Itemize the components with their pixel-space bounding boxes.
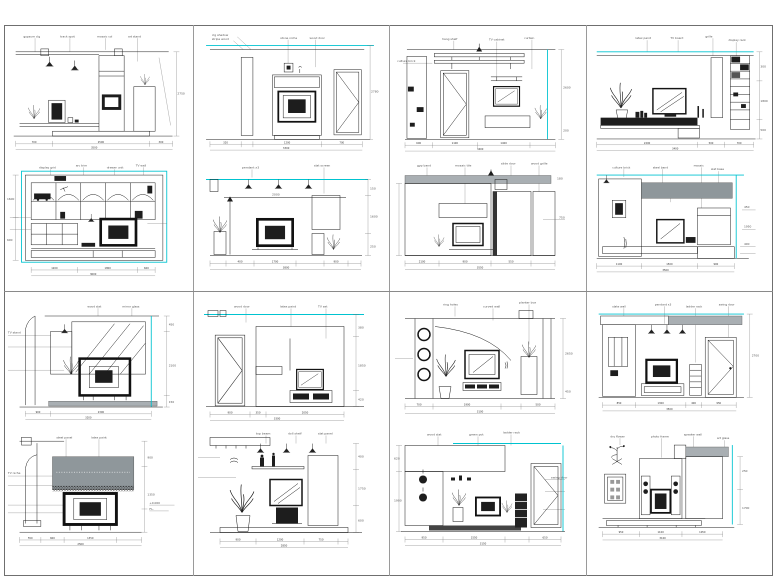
tv-icon (494, 87, 520, 107)
beam-block (519, 311, 533, 319)
anno-label: display grid (39, 165, 56, 169)
soundbar (82, 243, 96, 247)
anno-label: curtain (524, 36, 534, 40)
pendant-lamp-icon (305, 180, 312, 189)
elevation-4b: culture brick steel band mosaic slat bas… (589, 158, 773, 288)
dim-total: 3300 (274, 417, 281, 421)
anno-label: wood door (234, 305, 251, 309)
pendant-lamp-icon (309, 444, 316, 453)
column-base (23, 521, 40, 527)
dim-total: 3100 (477, 410, 484, 414)
dim-total: 3100 (659, 536, 666, 540)
steel-band (641, 183, 732, 198)
dim: 2100 (419, 260, 426, 264)
anno-label: swing door (719, 302, 736, 306)
anno-label: latex paint (91, 435, 107, 439)
plant-icon (230, 485, 254, 513)
display-grid (31, 183, 155, 220)
dim: 700 (737, 141, 742, 145)
dim-height: 400 (744, 242, 750, 246)
leader (159, 58, 171, 126)
anno-label: mirror glass (122, 304, 140, 308)
tv-unit (635, 89, 703, 118)
anno-label: 750 (559, 216, 565, 220)
tv-unit (290, 369, 332, 402)
dim: 1100 (616, 262, 623, 266)
pendant-lamp-icon (679, 325, 686, 334)
arrow-pole (227, 197, 233, 255)
plant-icon (213, 217, 227, 233)
anno-label: ladder rack (686, 304, 703, 308)
dim-height: 400 (358, 455, 364, 459)
dim-height: 1900 (394, 499, 402, 503)
pendant-lamp-icon (663, 325, 670, 334)
anno-label: latex paint (280, 305, 297, 309)
plant-icon (535, 105, 547, 119)
dim: 550 (28, 536, 33, 540)
dim-total: 3150 (480, 542, 487, 546)
dim: 900 (463, 260, 468, 264)
level-note: +0.000 F.L. (149, 501, 174, 511)
tv-unit (657, 220, 696, 243)
dim: 1400 (500, 141, 507, 145)
anno-label: display rack (728, 38, 746, 42)
annotations: latex paint TV board grille display rack (635, 34, 746, 55)
dim: 600 (50, 536, 55, 540)
annotations: pendant x3 2000 slat screen (242, 164, 330, 197)
anno-label: swing door (551, 476, 568, 480)
pendant-lamp-icon (257, 444, 264, 453)
dim-height: 600 (7, 238, 13, 242)
grid-divider-v2 (389, 25, 390, 576)
tv-low-cabinet (601, 118, 698, 126)
dim-height: 1750 (358, 487, 366, 491)
dim-height: 1600 (7, 197, 15, 201)
dim: 1500 (666, 262, 673, 266)
annotations: clg shadow stripe wood stone niche wood … (212, 33, 326, 67)
photo-frame (604, 474, 625, 503)
anno-label: photo frame (651, 434, 669, 438)
dim: 1350 (87, 536, 94, 540)
anno-label: arc trim (76, 163, 88, 167)
dim: 700 (339, 140, 344, 144)
anno-label: wood door (310, 36, 326, 40)
doll-shelf (252, 453, 304, 469)
door-icon (215, 335, 245, 406)
dim-total: 3800 (283, 266, 290, 270)
door (705, 337, 736, 397)
anno-label: TV cabinet (488, 38, 505, 42)
dim-height: 150 (370, 187, 376, 191)
anno-label: hang shelf (442, 37, 458, 41)
ring-column (415, 319, 433, 399)
mosaic-band (697, 208, 730, 216)
speaker-wall (639, 459, 682, 519)
anno-label: wood slat (87, 304, 102, 308)
dim: 600 (144, 266, 149, 270)
dim: 1100 (657, 530, 664, 534)
dim-height: 500 (760, 128, 766, 132)
elevation-5a: wood slat mirror glass TV stand 900 2300… (6, 297, 190, 427)
dim: 1800 (104, 266, 111, 270)
hanger (488, 171, 494, 176)
dim: 1200 (51, 266, 58, 270)
dim-height: 1800 (760, 99, 768, 103)
dim: 2050 (302, 411, 309, 415)
dim-height: 2100 (169, 363, 177, 367)
anno-label: gypsum clg (23, 34, 40, 38)
dimensions: 1100 1500 900 3500 450 1950 400 (597, 205, 756, 272)
beam-block (210, 180, 218, 192)
steel-panel (52, 457, 133, 492)
annotations: wood slat mirror glass TV stand (7, 304, 140, 370)
elevation-6a: wood door latex paint TV set 900 350 205… (196, 297, 386, 427)
annotations: top beam doll shelf slat panel (198, 432, 333, 478)
dim-height: 420 (358, 398, 364, 402)
dim-height: 250 (742, 469, 748, 473)
stripe-column (241, 57, 253, 135)
tv-stand (80, 359, 130, 401)
beam-box (208, 311, 218, 317)
dim: 1300 (657, 401, 664, 405)
anno-label: slat screen (314, 164, 330, 168)
dim-height: 900 (147, 456, 153, 460)
dim: 750 (319, 538, 324, 542)
anno-label: curved wall (483, 305, 500, 309)
side-column (25, 443, 37, 523)
plant-icon (140, 74, 149, 85)
elevation-1b: display grid arc trim drawer unit TV wal… (6, 158, 190, 288)
base-strip (603, 247, 698, 254)
anno-label: ladder rack (503, 431, 520, 435)
elevation-2a: clg shadow stripe wood stone niche wood … (196, 30, 386, 154)
dimensions: 900 350 2050 3300 380 1850 420 (210, 315, 366, 421)
anno-label: drawer unit (107, 165, 125, 169)
top-beam (210, 438, 270, 449)
feature-column (99, 56, 124, 132)
dim: 600 (416, 141, 421, 145)
elevation-3a: hang shelf culture brick TV cabinet curt… (393, 30, 583, 154)
dim: 1100 (452, 141, 459, 145)
dim: 900 (36, 410, 41, 414)
slat-screen (312, 196, 340, 230)
dim-height: 2600 (563, 86, 571, 90)
anno-label: grille (705, 34, 712, 38)
dim: 1200 (277, 538, 284, 542)
dim-height: 200 (563, 129, 569, 133)
anno-label: TV niche (7, 471, 21, 475)
dim: 320 (223, 140, 228, 144)
door (531, 464, 561, 528)
pendant-lamp-icon (245, 180, 252, 189)
dim-total: 2500 (77, 542, 84, 546)
side-column (25, 316, 35, 405)
dimensions: 900 1200 750 2850 400 1750 600 (220, 444, 366, 548)
grille-panel (533, 192, 555, 256)
drawer-unit (31, 223, 77, 244)
annotations: wood door latex paint TV set (234, 305, 328, 339)
pendant-lamp-icon (648, 325, 655, 334)
stone-wall (603, 325, 636, 397)
wall-outline (405, 184, 491, 256)
base-strip (49, 401, 157, 406)
dim-total: 3500 (662, 268, 669, 272)
dim: 950 (619, 530, 624, 534)
annotations: display grid arc trim drawer unit TV wal… (39, 163, 146, 175)
plant-icon (28, 105, 40, 119)
slat-panel (51, 331, 72, 374)
dim: 1550 (471, 536, 478, 540)
ladder-rack (690, 364, 702, 395)
grid-divider-h1 (4, 291, 773, 292)
anno-label: TV board (669, 36, 683, 40)
plant-icon (502, 501, 512, 513)
dim-height: 250 (370, 245, 376, 249)
left-plant (213, 217, 227, 255)
dim-height: 450 (565, 390, 571, 394)
sliding-door (493, 180, 531, 256)
dim: 500 (536, 403, 541, 407)
anno-label: pendant x3 (242, 166, 259, 170)
dim: 950 (422, 536, 427, 540)
plant-icon (610, 83, 631, 108)
center-display (451, 476, 512, 522)
tv-icon (297, 369, 324, 389)
dim: 1700 (272, 260, 279, 264)
anno-label: stone niche (280, 36, 297, 40)
hatch-band (256, 367, 282, 375)
anno-label: TV stand (7, 330, 21, 334)
plant-icon (434, 235, 444, 247)
dim-total: 3500 (91, 146, 98, 150)
beam-box (220, 311, 226, 317)
dim: 700 (417, 403, 422, 407)
anno-label: slat panel (318, 432, 333, 436)
anno-label: track spot (60, 34, 75, 38)
dimensions: 600 1100 1400 3400 2600 200 (405, 50, 571, 152)
tv-unit (252, 219, 298, 249)
plant-icon (452, 490, 466, 506)
anno-label: dry flower (610, 434, 625, 438)
dim-height: 300 (760, 64, 766, 68)
pendant-lamp-icon (88, 214, 94, 222)
dim: 900 (236, 538, 241, 542)
elevation-6b: top beam doll shelf slat panel 900 1200 … (196, 428, 386, 558)
ladder-rack (515, 494, 527, 528)
grid-divider-v1 (193, 25, 194, 576)
anno-label: TV wall (135, 163, 147, 167)
plant-icon (327, 235, 340, 250)
dim-height: 620 (394, 457, 400, 461)
pendant-lamp-icon (46, 57, 54, 66)
dim: 900 (334, 260, 339, 264)
anno-label: slate wall (612, 304, 626, 308)
anno-label: green pot (469, 433, 484, 437)
ceiling-beam (16, 49, 169, 56)
plinth (31, 249, 155, 258)
anno-label: doll shelf (288, 432, 303, 436)
dim-height: 1600 (370, 215, 378, 219)
anno-label: art stand (128, 34, 141, 38)
annotations: slate wall pendant x3 ladder rack swing … (612, 302, 735, 362)
dim-height: 600 (358, 519, 364, 523)
anno-label: pendant x3 (655, 302, 672, 306)
display-rack (730, 56, 749, 130)
anno-label: art glass (717, 436, 730, 440)
elevation-5b: steel panel latex paint TV niche +0.000 … (6, 428, 190, 558)
anno-label: steel band (653, 165, 668, 169)
brick-wall (599, 175, 642, 256)
dim: 950 (716, 401, 721, 405)
dim-height: 2650 (565, 352, 573, 356)
dim-height: 1850 (358, 364, 366, 368)
anno-label: slat base (711, 167, 724, 171)
dry-flower (609, 445, 624, 464)
dim-total: 3550 (477, 266, 484, 270)
tv-icon (101, 219, 136, 245)
dim: 2500 (98, 140, 105, 144)
mosaic-band (439, 204, 487, 218)
dim: 2200 (644, 141, 651, 145)
dim: 1050 (699, 530, 706, 534)
dim: 1900 (464, 403, 471, 407)
tv-unit (463, 351, 508, 391)
pendant-lamp-icon (71, 61, 79, 70)
dim-total: 2850 (281, 544, 288, 548)
dim-height: 2750 (177, 91, 185, 95)
dim-height: 450 (744, 205, 750, 209)
cad-sheet: gypsum clg track spot mosaic col art sta… (0, 0, 780, 585)
art-display (20, 100, 99, 126)
dim: 350 (256, 411, 261, 415)
anno-label: ring holes (443, 303, 458, 307)
anno-label: mosaic (694, 163, 705, 167)
slat-base (697, 247, 734, 259)
hatch-column (711, 58, 723, 118)
dim-height: 380 (358, 326, 364, 330)
anno-label: 2000 (272, 193, 280, 197)
anno-label: speaker wall (684, 432, 702, 436)
dim-total: 3300 (283, 146, 290, 150)
tv-icon (257, 219, 292, 245)
elevation-8a: slate wall pendant x3 ladder rack swing … (589, 297, 773, 427)
tv-niche (272, 63, 321, 139)
tv-unit (434, 224, 493, 250)
dim: 500 (709, 141, 714, 145)
beam-block (674, 445, 686, 459)
anno-label: slide door (501, 162, 517, 166)
dim: 550 (509, 260, 514, 264)
anno-label: wood slat (427, 433, 442, 437)
dim-total: 3500 (666, 407, 673, 411)
glass-wall (686, 457, 723, 519)
hanging-shelf (434, 44, 524, 69)
dim: 900 (713, 262, 718, 266)
dim-height: 150 (169, 400, 175, 404)
anno-label: latex paint (635, 36, 651, 40)
sign-plate (54, 176, 66, 181)
dim: 700 (32, 140, 37, 144)
annotations: gypsum clg track spot mosaic col art sta… (23, 34, 141, 61)
right-pedestal (312, 234, 340, 255)
accent-lines (453, 444, 563, 532)
dim-total: 3200 (85, 416, 92, 420)
dim-height: 2700 (752, 354, 760, 358)
dim: 650 (543, 536, 548, 540)
gypsum-band (405, 176, 551, 184)
grid-divider-v3 (586, 25, 587, 576)
elevation-3b: gyp band mosaic tile slide door wood gri… (393, 158, 583, 288)
big-plant (230, 485, 254, 532)
elevation-2b: pendant x3 2000 slat screen 400 1700 900… (196, 158, 386, 288)
dim: 1200 (284, 140, 291, 144)
hatch-panel (697, 216, 730, 245)
platform (603, 519, 706, 528)
anno-label: culture brick (397, 59, 416, 63)
anno-label: gyp band (417, 164, 431, 168)
dim: 2300 (98, 410, 105, 414)
pedestal (134, 74, 155, 131)
top-band (601, 316, 742, 325)
note-label: +0.000 (149, 501, 160, 505)
anno-label: TV set (317, 305, 328, 309)
top-band (686, 447, 729, 457)
anno-label: stripe wood (212, 37, 229, 41)
dim-height: 1700 (742, 506, 750, 510)
pendant-lamp-icon (283, 444, 290, 453)
bird-marks (230, 458, 238, 463)
dim-height: 2780 (371, 89, 379, 93)
base-strip (429, 526, 521, 531)
dim: 400 (238, 260, 243, 264)
tv-unit (270, 480, 302, 524)
dim: 850 (617, 401, 622, 405)
base-platform (52, 131, 149, 136)
anno-label: planter box (519, 301, 536, 305)
dim: 900 (228, 411, 233, 415)
dim-height: 1950 (744, 224, 752, 228)
elevation-7a: ring holes curved wall planter box 700 1… (393, 297, 583, 427)
anno-label: steel panel (56, 435, 72, 439)
dim-height: 180 (557, 177, 563, 181)
dim: 400 (691, 401, 696, 405)
tv-niche (64, 493, 116, 530)
elevation-7b: wood slat green pot ladder rack swing do… (393, 428, 583, 558)
pendant-lamp-icon (275, 180, 282, 189)
anno-label: wood grille (531, 162, 548, 166)
elevation-1a: gypsum clg track spot mosaic col art sta… (6, 30, 190, 154)
dimensions: 700 2500 300 3500 2750 (16, 52, 185, 150)
anno-label: mosaic col (97, 34, 113, 38)
elevation-8b: dry flower photo frame speaker wall art … (589, 428, 773, 558)
tv-icon (646, 360, 677, 383)
dim-total: 3400 (477, 147, 484, 151)
dim-total: 3600 (90, 272, 97, 276)
tv-unit (641, 360, 684, 396)
elevation-4a: latex paint TV board grille display rack… (589, 30, 773, 154)
door-icon (334, 70, 361, 135)
dim-height: 450 (169, 323, 175, 327)
tv-unit (485, 77, 546, 128)
anno-label: top beam (256, 432, 270, 436)
cabinet-base (601, 125, 700, 128)
tv-icon (476, 497, 500, 515)
dim: 300 (159, 140, 164, 144)
right-column (543, 319, 551, 399)
plant-icon (437, 355, 456, 377)
dim-total: 3400 (672, 147, 679, 151)
dim-height: 1350 (147, 492, 155, 496)
